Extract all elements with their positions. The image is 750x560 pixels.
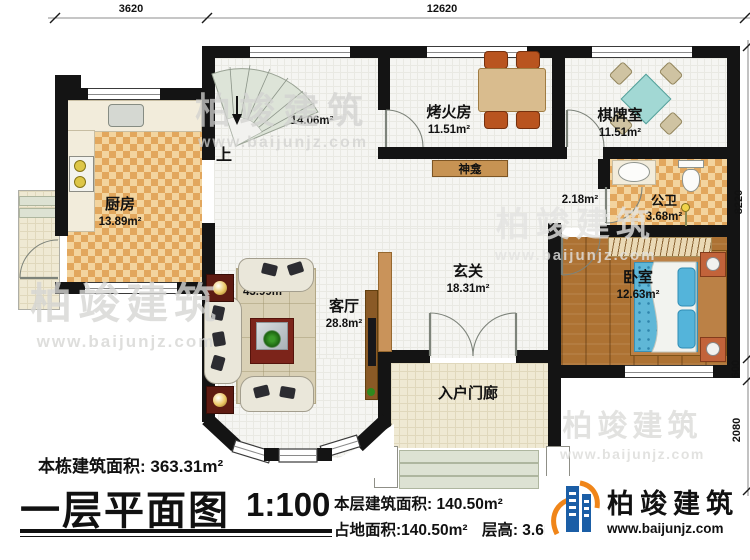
sofa-bottom: [240, 376, 314, 412]
fireroom-label: 烤火房 11.51m²: [426, 103, 471, 137]
foyer-wall-right: [548, 223, 561, 448]
window-top-2: [427, 46, 527, 58]
tv-wall-panel: [378, 252, 392, 352]
nightstand-knob: [706, 257, 720, 271]
fireroom-wall-left: [378, 46, 390, 110]
porch-label: 入户门廊: [438, 384, 498, 404]
side-landing-step: [19, 208, 59, 218]
total-area-text: 本栋建筑面积: 363.31m²: [38, 452, 223, 477]
brand-website: www.baijunjz.com: [607, 521, 739, 536]
dim-top-left: 3620: [55, 3, 207, 15]
watermark-url: www.baijunjz.com: [560, 446, 705, 464]
watermark-name: 柏竣建筑: [560, 408, 705, 446]
wall-left-upper: [202, 46, 215, 160]
floor-plan-canvas: 神龛 43.99m²: [0, 0, 750, 560]
kitchen-window-bottom: [85, 282, 177, 294]
title-underline-thin: [20, 536, 332, 537]
porch-pillar-left: [374, 446, 398, 488]
dining-table: [478, 68, 546, 112]
porch-step: [399, 463, 539, 476]
bathroom-wall-left: [598, 159, 610, 189]
tv-screen: [368, 318, 376, 366]
kitchen-window-top: [88, 88, 160, 100]
kitchen-wall-left: [55, 88, 68, 236]
plan-scale: 1:100: [246, 486, 330, 524]
chessroom-label: 棋牌室 11.51m²: [597, 106, 642, 140]
fireroom-wall-bottom: [378, 147, 565, 159]
living-label: 客厅 28.8m²: [326, 297, 362, 331]
shower-rail: [685, 212, 687, 226]
dim-right-8220: 8220: [733, 180, 745, 224]
toilet-tank: [678, 160, 704, 168]
kitchen-label: 厨房 13.89m²: [99, 195, 142, 229]
chessroom-wall-bottom-b: [603, 147, 740, 159]
foyer-wall-bottom-right: [516, 350, 561, 363]
watermark: 柏竣建筑 www.baijunjz.com: [560, 408, 705, 463]
bedroom-wall-top-b: [600, 225, 740, 237]
dim-top-right: 12620: [207, 3, 677, 15]
bedroom-label: 卧室 12.63m²: [617, 268, 660, 302]
sofa-cushion: [212, 331, 226, 347]
ground-area-line: 占地面积:140.50m² 层高: 3.6m: [334, 518, 558, 540]
porch-step: [399, 476, 539, 489]
porch-step: [399, 450, 539, 463]
dining-chair: [516, 51, 540, 69]
dining-chair: [484, 111, 508, 129]
kitchen-column: [55, 75, 81, 89]
brand-text-group: 柏竣建筑 www.baijunjz.com: [607, 482, 739, 536]
watermark-url: www.baijunjz.com: [30, 331, 222, 352]
porch-floor: [391, 363, 548, 448]
shrine-cabinet: 神龛: [432, 160, 508, 177]
brand-logo-icon: [547, 478, 601, 540]
dining-chair: [516, 111, 540, 129]
table-lamp: [213, 393, 227, 407]
toilet-bowl: [682, 169, 700, 192]
bathroom-label: 公卫 3.68m²: [646, 193, 682, 225]
chessroom-wall-left: [552, 46, 565, 147]
kitchen-sink: [108, 104, 144, 127]
stairwell-area-label: 14.06m²: [291, 114, 334, 129]
sofa-top: [238, 258, 314, 292]
sofa-cushion: [279, 386, 296, 399]
plan-title: 一层平面图: [20, 478, 230, 536]
ground-area-text: 占地面积:140.50m²: [334, 522, 468, 539]
stove-burner: [74, 176, 86, 188]
chessroom-wall-bottom-a: [552, 147, 567, 159]
brand-logo: 柏竣建筑 www.baijunjz.com: [545, 476, 741, 542]
bedroom-window: [625, 365, 713, 378]
window-top-1: [250, 46, 350, 58]
cabinet-plant: [367, 388, 375, 396]
nightstand-knob: [706, 342, 720, 356]
bath-sink: [618, 162, 650, 182]
window-top-3: [592, 46, 692, 58]
dining-chair: [484, 51, 508, 69]
stairs-up-label: 上: [216, 141, 232, 165]
corridor-area-label: 2.18m²: [562, 193, 598, 208]
side-landing-step: [19, 196, 59, 206]
foyer-label: 玄关 18.31m²: [447, 262, 490, 296]
table-lamp: [213, 281, 227, 295]
shrine-label: 神龛: [459, 161, 482, 177]
dim-right-2080: 2080: [731, 408, 743, 452]
plant: [263, 330, 281, 348]
porch-wall-left: [378, 350, 391, 450]
brand-name: 柏竣建筑: [607, 482, 739, 521]
floor-area-text: 本层建筑面积: 140.50m²: [334, 492, 503, 514]
stove-burner: [74, 160, 86, 172]
title-underline-thick: [20, 529, 332, 533]
wardrobe: [608, 237, 712, 257]
shower-head: [681, 203, 690, 212]
dim-right-600: 600: [730, 351, 742, 387]
